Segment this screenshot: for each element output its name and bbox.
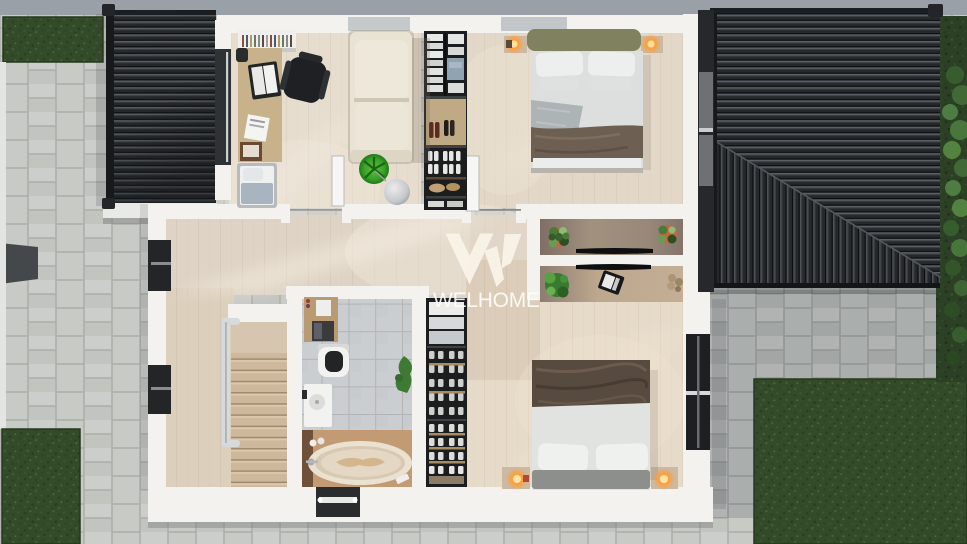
svg-text:WELHOME: WELHOME — [433, 289, 540, 312]
